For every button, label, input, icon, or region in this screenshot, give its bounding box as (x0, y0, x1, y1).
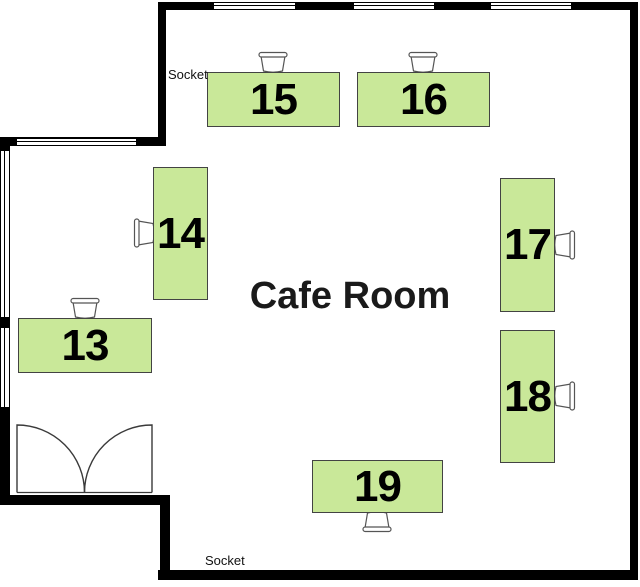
desk-17[interactable]: 17 (500, 178, 555, 312)
window-icon (0, 150, 10, 318)
wall-step-bottom (160, 495, 170, 580)
chair-icon (554, 379, 576, 413)
socket-label-bottom: Socket (205, 554, 245, 567)
chair-icon (554, 228, 576, 262)
desk-18[interactable]: 18 (500, 330, 555, 463)
desk-13[interactable]: 13 (18, 318, 152, 373)
desk-label: 18 (504, 375, 551, 419)
desk-19[interactable]: 19 (312, 460, 443, 513)
desk-label: 16 (400, 78, 447, 122)
desk-14[interactable]: 14 (153, 167, 208, 300)
floor-plan: 15 16 14 13 17 18 19 Cafe Room Socket So… (0, 0, 640, 587)
double-door-icon (10, 420, 160, 500)
desk-label: 13 (62, 324, 109, 368)
window-icon (353, 2, 435, 10)
desk-label: 17 (504, 223, 551, 267)
window-icon (490, 2, 572, 10)
room-title: Cafe Room (228, 276, 472, 318)
chair-icon (406, 51, 440, 73)
desk-15[interactable]: 15 (207, 72, 340, 127)
chair-icon (360, 511, 394, 533)
desk-16[interactable]: 16 (357, 72, 490, 127)
wall-bottom (158, 570, 638, 580)
desk-label: 15 (250, 78, 297, 122)
socket-label-top: Socket (168, 68, 208, 81)
chair-icon (68, 297, 102, 319)
desk-label: 14 (157, 212, 204, 256)
window-icon (0, 327, 10, 408)
wall-right (630, 2, 638, 580)
window-icon (213, 2, 296, 10)
chair-icon (256, 51, 290, 73)
window-icon (16, 138, 137, 146)
chair-icon (133, 216, 155, 250)
wall-left-upper (158, 2, 166, 146)
desk-label: 19 (354, 465, 401, 509)
